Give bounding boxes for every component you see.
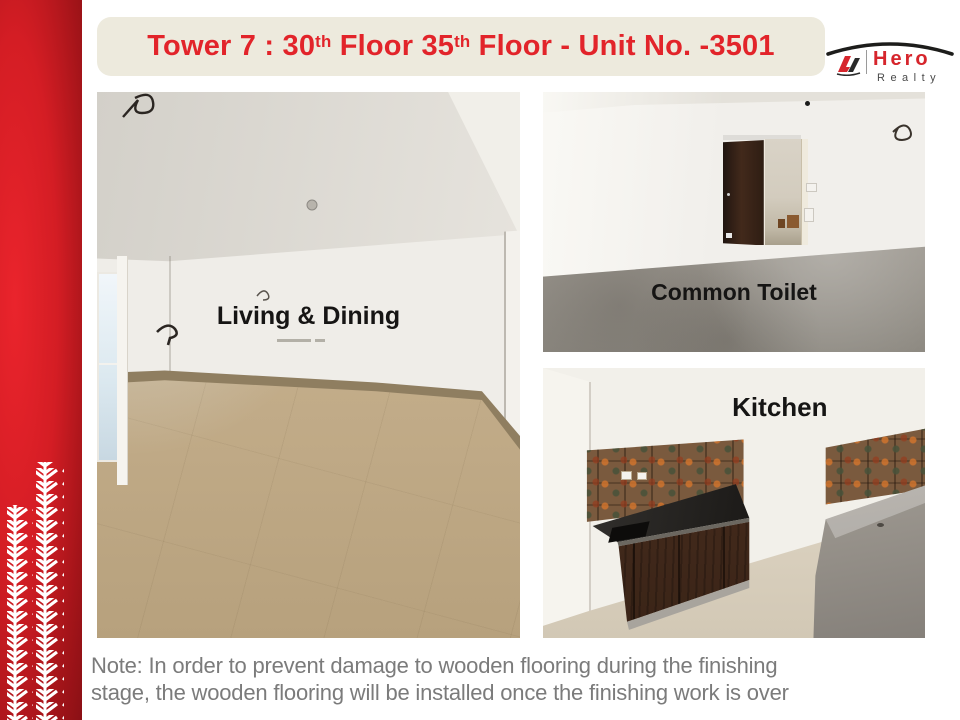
switch-plate [621, 471, 632, 480]
photo-label-living-dining: Living & Dining [217, 302, 400, 331]
title-sup-1: th [315, 32, 331, 51]
logo-mark-icon [834, 50, 864, 76]
note-text: Note: In order to prevent damage to wood… [91, 652, 936, 706]
photo-kitchen: Kitchen [543, 368, 925, 638]
photo-living-dining: Living & Dining [97, 92, 520, 638]
title-part-1: Tower 7 : 30 [147, 30, 315, 62]
logo-divider [866, 50, 867, 74]
photo-label-kitchen: Kitchen [732, 392, 827, 423]
title-banner: Tower 7 : 30th Floor 35th Floor - Unit N… [97, 17, 825, 76]
note-line-1: Note: In order to prevent damage to wood… [91, 652, 936, 679]
living-wires-decoration [97, 92, 520, 638]
logo-sub-text: Realty [877, 72, 941, 84]
title-part-2: Floor 35 [331, 30, 454, 62]
wheat-decoration-icon [0, 0, 82, 720]
photo-label-common-toilet: Common Toilet [651, 279, 817, 306]
title-sup-2: th [454, 32, 470, 51]
slide-title: Tower 7 : 30th Floor 35th Floor - Unit N… [147, 30, 774, 63]
photo-common-toilet: Common Toilet [543, 92, 925, 352]
hero-realty-logo: Hero Realty [824, 20, 956, 88]
title-part-3: Floor - Unit No. -3501 [470, 30, 774, 62]
brand-sidebar [0, 0, 82, 720]
switch-plate [637, 472, 647, 480]
logo-brand-text: Hero [873, 48, 931, 71]
note-line-2: stage, the wooden flooring will be insta… [91, 679, 936, 706]
